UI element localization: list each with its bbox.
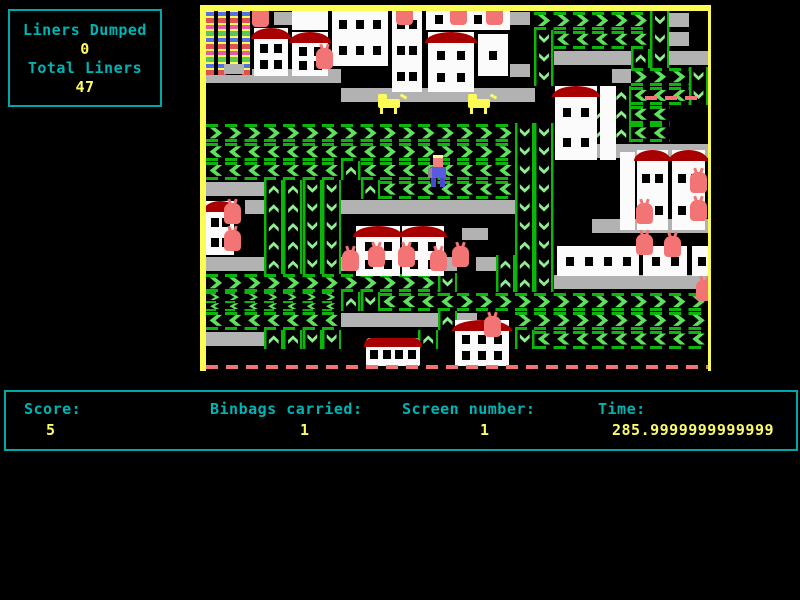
tile-conveyor-left <box>438 292 458 311</box>
player-torso <box>430 167 446 178</box>
tile-platform <box>380 311 400 330</box>
window <box>563 138 571 147</box>
tile-conveyor-left <box>303 161 323 180</box>
tile-platform <box>496 198 516 217</box>
window <box>652 257 660 266</box>
tile-platform <box>245 198 265 217</box>
tile-conveyor-up <box>283 255 303 274</box>
tile-conveyor-left <box>341 142 361 161</box>
tile-conveyor-right <box>631 292 651 311</box>
tile-platform <box>612 273 632 292</box>
tile-platform <box>399 198 419 217</box>
tile-conveyor-left <box>612 330 632 349</box>
tile-conveyor-down <box>650 49 670 68</box>
tile-conveyor-down <box>322 217 342 236</box>
tile-conveyor-right <box>534 311 554 330</box>
tile-conveyor-left <box>689 330 709 349</box>
tile-conveyor-left <box>206 142 226 161</box>
tile-conveyor-right <box>283 273 303 292</box>
tile-platform <box>476 255 496 274</box>
binbag-sprite <box>664 236 681 257</box>
building-windows <box>558 98 594 157</box>
tile-conveyor-left <box>225 161 245 180</box>
tile-conveyor-split <box>264 292 284 311</box>
tile-conveyor-down <box>322 198 342 217</box>
tile-conveyor-down <box>534 198 554 217</box>
tile-platform <box>225 330 245 349</box>
tile-conveyor-up <box>264 236 284 255</box>
tile-conveyor-right <box>669 311 689 330</box>
tile-conveyor-left <box>361 161 381 180</box>
binbag-sprite <box>636 203 653 224</box>
tile-conveyor-left <box>650 330 670 349</box>
tile-conveyor-left <box>264 142 284 161</box>
window <box>489 51 497 60</box>
window <box>356 46 364 55</box>
window <box>604 257 612 266</box>
tile-conveyor-right <box>245 273 265 292</box>
window <box>474 15 482 24</box>
tile-conveyor-right <box>438 123 458 142</box>
tile-conveyor-up <box>515 255 535 274</box>
window <box>462 351 470 360</box>
status-bar: Score: 5 Binbags carried: 1 Screen numbe… <box>4 390 798 451</box>
window <box>299 47 307 56</box>
window <box>478 351 486 360</box>
window <box>339 20 347 29</box>
dog-sprite <box>378 94 404 114</box>
tile-conveyor-down <box>650 11 670 30</box>
tile-conveyor-right <box>283 123 303 142</box>
tile-conveyor-up <box>496 273 516 292</box>
tile-conveyor-left <box>283 142 303 161</box>
window <box>678 174 686 183</box>
tile-conveyor-right <box>592 11 612 30</box>
tile-conveyor-down <box>534 30 554 49</box>
tile-conveyor-right <box>206 123 226 142</box>
tile-platform <box>669 273 689 292</box>
tile-conveyor-left <box>496 161 516 180</box>
tile-conveyor-left <box>399 292 419 311</box>
screen-number-label: Screen number: <box>402 400 535 418</box>
building <box>292 8 328 30</box>
binbag-sprite <box>484 316 501 337</box>
tile-platform <box>476 198 496 217</box>
tile-conveyor-up <box>341 292 361 311</box>
building-roof <box>353 226 403 237</box>
tile-conveyor-split <box>225 292 245 311</box>
tile-conveyor-up <box>264 198 284 217</box>
tile-conveyor-left <box>225 142 245 161</box>
tile-conveyor-right <box>245 123 265 142</box>
window <box>211 218 219 227</box>
window <box>373 46 381 55</box>
tile-conveyor-split <box>303 292 323 311</box>
tile-conveyor-right <box>612 311 632 330</box>
tile-conveyor-right <box>554 292 574 311</box>
binbags-label: Binbags carried: <box>210 400 363 418</box>
tile-platform <box>612 49 632 68</box>
window <box>478 335 486 344</box>
binbag-sprite <box>690 172 707 193</box>
game-screen: Liners Dumped 0 Total Liners 47 Score: 5… <box>0 0 800 600</box>
building <box>600 86 616 160</box>
tile-conveyor-left <box>264 311 284 330</box>
tile-conveyor-right <box>303 123 323 142</box>
tile-conveyor-right <box>264 273 284 292</box>
tile-conveyor-right <box>361 123 381 142</box>
tile-conveyor-up <box>361 180 381 199</box>
tile-conveyor-right <box>399 123 419 142</box>
tile-conveyor-left <box>303 311 323 330</box>
tile-conveyor-right <box>476 142 496 161</box>
tile-conveyor-down <box>515 123 535 142</box>
tile-conveyor-left <box>245 161 265 180</box>
tile-conveyor-right <box>650 292 670 311</box>
window <box>435 15 443 24</box>
building-windows <box>431 44 471 89</box>
window <box>457 73 465 82</box>
tile-platform <box>341 198 361 217</box>
tile-conveyor-down <box>303 330 323 349</box>
tile-platform <box>225 255 245 274</box>
tile-conveyor-down <box>515 142 535 161</box>
tile-conveyor-right <box>380 142 400 161</box>
building-windows <box>481 37 505 73</box>
tile-conveyor-right <box>457 292 477 311</box>
tile-conveyor-down <box>303 255 323 274</box>
building-roof <box>634 150 671 161</box>
window <box>383 350 391 359</box>
tile-platform <box>361 311 381 330</box>
playfield-border-right <box>708 5 711 371</box>
window <box>437 51 445 60</box>
building <box>254 28 288 76</box>
tile-conveyor-down <box>322 330 342 349</box>
building-roof <box>251 28 291 39</box>
window <box>457 51 465 60</box>
tile-conveyor-left <box>264 161 284 180</box>
tile-conveyor-down <box>534 123 554 142</box>
dustcart-windows <box>370 350 416 359</box>
window <box>373 20 381 29</box>
building-windows <box>458 332 506 363</box>
screen-number-value: 1 <box>480 421 490 439</box>
tile-platform <box>380 198 400 217</box>
playfield-border-top <box>200 5 711 11</box>
window <box>274 44 282 53</box>
tile-conveyor-up <box>283 198 303 217</box>
tile-conveyor-right <box>322 273 342 292</box>
tile-platform <box>669 49 689 68</box>
building <box>428 32 474 92</box>
liners-dumped-value: 0 <box>80 40 90 58</box>
tile-platform <box>515 86 535 105</box>
tile-conveyor-left <box>380 180 400 199</box>
tile-conveyor-right <box>612 11 632 30</box>
tile-conveyor-right <box>689 311 709 330</box>
tile-conveyor-left <box>650 105 670 124</box>
tile-conveyor-down <box>534 255 554 274</box>
window <box>566 257 574 266</box>
building-roof <box>452 320 512 331</box>
tile-conveyor-right <box>322 123 342 142</box>
tile-conveyor-down <box>534 142 554 161</box>
tile-conveyor-left <box>612 30 632 49</box>
tile-platform <box>631 273 651 292</box>
tile-conveyor-split <box>245 292 265 311</box>
tile-platform <box>341 311 361 330</box>
window <box>370 350 378 359</box>
window <box>397 46 405 55</box>
building-roof <box>552 86 600 97</box>
tile-conveyor-up <box>283 180 303 199</box>
binbag-sprite <box>316 48 333 69</box>
window <box>409 46 417 55</box>
tile-conveyor-right <box>225 123 245 142</box>
window <box>408 350 416 359</box>
binbag-sprite <box>636 234 653 255</box>
tile-conveyor-down <box>515 180 535 199</box>
tile-conveyor-down <box>361 292 381 311</box>
tile-conveyor-right <box>303 273 323 292</box>
tile-platform <box>245 255 265 274</box>
building-windows <box>560 249 636 273</box>
binbag-sprite <box>690 200 707 221</box>
tile-conveyor-right <box>418 123 438 142</box>
window <box>397 72 405 81</box>
tile-platform <box>206 330 226 349</box>
tile-conveyor-down <box>322 180 342 199</box>
window <box>356 20 364 29</box>
tile-platform <box>573 49 593 68</box>
tile-conveyor-left <box>631 30 651 49</box>
tile-platform <box>225 180 245 199</box>
tile-conveyor-down <box>650 30 670 49</box>
building <box>557 246 639 276</box>
tile-platform <box>361 198 381 217</box>
tile-conveyor-left <box>457 161 477 180</box>
tile-conveyor-up <box>283 330 303 349</box>
window <box>623 257 631 266</box>
tile-conveyor-right <box>399 273 419 292</box>
platform-block <box>274 12 292 25</box>
building-roof <box>669 150 708 161</box>
tile-conveyor-left <box>457 180 477 199</box>
building-roof <box>399 226 447 237</box>
tile-platform <box>573 273 593 292</box>
tile-conveyor-left <box>245 311 265 330</box>
tile-conveyor-right <box>496 292 516 311</box>
tile-conveyor-right <box>650 311 670 330</box>
tile-conveyor-down <box>303 198 323 217</box>
tile-conveyor-up <box>341 161 361 180</box>
tile-conveyor-left <box>418 292 438 311</box>
tile-conveyor-left <box>631 123 651 142</box>
building <box>620 152 635 230</box>
tile-conveyor-left <box>669 330 689 349</box>
tile-conveyor-down <box>303 180 323 199</box>
tile-conveyor-left <box>534 330 554 349</box>
tile-conveyor-right <box>669 67 689 86</box>
tile-conveyor-right <box>631 311 651 330</box>
tile-conveyor-right <box>341 273 361 292</box>
tile-conveyor-up <box>283 236 303 255</box>
tile-conveyor-down <box>534 217 554 236</box>
building-windows <box>257 40 285 73</box>
tile-conveyor-down <box>689 67 709 86</box>
tile-platform <box>399 311 419 330</box>
tile-conveyor-split <box>206 292 226 311</box>
tile-platform <box>592 49 612 68</box>
tile-conveyor-split <box>283 292 303 311</box>
tile-conveyor-up <box>496 255 516 274</box>
tile-conveyor-left <box>380 292 400 311</box>
tile-conveyor-right <box>534 11 554 30</box>
tile-conveyor-right <box>554 11 574 30</box>
window <box>678 206 686 215</box>
window <box>260 44 268 53</box>
tile-conveyor-down <box>534 236 554 255</box>
window <box>642 174 650 183</box>
window <box>274 60 282 69</box>
tile-platform <box>341 86 361 105</box>
tile-conveyor-up <box>283 217 303 236</box>
tile-conveyor-right <box>573 311 593 330</box>
window <box>671 257 679 266</box>
building-roof <box>425 32 477 43</box>
tile-conveyor-right <box>399 142 419 161</box>
time-value: 285.9999999999999 <box>612 421 774 439</box>
platform-block <box>510 64 530 77</box>
tile-conveyor-right <box>225 273 245 292</box>
tile-conveyor-left <box>592 30 612 49</box>
tile-conveyor-up <box>264 330 284 349</box>
tile-conveyor-right <box>631 11 651 30</box>
building <box>555 86 597 160</box>
window <box>563 108 571 117</box>
building-windows <box>335 11 385 63</box>
tile-conveyor-left <box>554 30 574 49</box>
tile-platform <box>612 67 632 86</box>
tile-conveyor-left <box>631 105 651 124</box>
dustcart-sprite <box>366 338 420 366</box>
window <box>409 72 417 81</box>
tile-conveyor-down <box>322 255 342 274</box>
tile-conveyor-right <box>612 292 632 311</box>
tile-conveyor-left <box>496 180 516 199</box>
tile-conveyor-left <box>206 161 226 180</box>
binbag-sprite <box>224 203 241 224</box>
tile-conveyor-down <box>303 236 323 255</box>
tile-conveyor-right <box>515 311 535 330</box>
window <box>494 351 502 360</box>
building <box>332 8 388 66</box>
building <box>478 34 508 76</box>
tile-conveyor-left <box>476 180 496 199</box>
tile-conveyor-right <box>476 123 496 142</box>
tile-conveyor-left <box>361 142 381 161</box>
tile-conveyor-right <box>418 273 438 292</box>
tile-conveyor-left <box>322 142 342 161</box>
tile-platform <box>206 255 226 274</box>
tile-conveyor-right <box>476 292 496 311</box>
tile-conveyor-right <box>361 273 381 292</box>
tile-platform <box>592 273 612 292</box>
tile-platform <box>554 273 574 292</box>
tile-conveyor-left <box>650 123 670 142</box>
tile-platform <box>592 217 612 236</box>
tile-platform <box>418 198 438 217</box>
window <box>655 206 663 215</box>
platform-block <box>462 228 488 240</box>
tile-conveyor-down <box>534 180 554 199</box>
tile-conveyor-down <box>438 273 458 292</box>
dog-head <box>378 94 387 103</box>
window <box>698 257 706 266</box>
tile-conveyor-right <box>496 142 516 161</box>
tile-conveyor-right <box>592 292 612 311</box>
tile-conveyor-down <box>534 67 554 86</box>
playfield-border-bottom-dashed <box>206 365 708 369</box>
playfield[interactable] <box>200 5 711 371</box>
player-legs <box>431 178 445 187</box>
window <box>462 335 470 344</box>
tile-conveyor-left <box>476 161 496 180</box>
binbags-value: 1 <box>300 421 310 439</box>
tile-conveyor-right <box>457 123 477 142</box>
dog-sprite <box>468 94 494 114</box>
tile-platform <box>418 311 438 330</box>
dog-head <box>468 94 477 103</box>
tile-platform <box>245 330 265 349</box>
tile-conveyor-right <box>534 292 554 311</box>
tile-conveyor-left <box>303 142 323 161</box>
tile-platform <box>438 198 458 217</box>
tile-conveyor-up <box>264 180 284 199</box>
binbag-sprite <box>368 246 385 267</box>
tile-conveyor-right <box>457 142 477 161</box>
tile-conveyor-up <box>515 236 535 255</box>
tile-conveyor-up <box>515 273 535 292</box>
platform-block <box>510 12 530 25</box>
dog-legs <box>470 107 490 114</box>
tile-conveyor-down <box>515 198 535 217</box>
binbag-sprite <box>224 230 241 251</box>
tile-conveyor-left <box>283 311 303 330</box>
player-sprite <box>428 155 448 187</box>
rubbish-dashes <box>645 96 703 100</box>
tile-conveyor-right <box>592 311 612 330</box>
window <box>655 174 663 183</box>
binbag-sprite <box>452 246 469 267</box>
score-label: Score: <box>24 400 81 418</box>
total-liners-value: 47 <box>75 78 94 96</box>
tile-conveyor-right <box>669 292 689 311</box>
tile-conveyor-right <box>573 292 593 311</box>
dustcart-roof <box>364 338 422 347</box>
tile-conveyor-left <box>322 311 342 330</box>
platform-block <box>224 64 244 74</box>
tile-conveyor-down <box>303 217 323 236</box>
window <box>339 46 347 55</box>
tile-conveyor-up <box>631 49 651 68</box>
tile-conveyor-left <box>399 161 419 180</box>
tile-conveyor-left <box>573 330 593 349</box>
tile-conveyor-left <box>283 161 303 180</box>
building-windows <box>695 249 708 273</box>
tile-platform <box>457 198 477 217</box>
